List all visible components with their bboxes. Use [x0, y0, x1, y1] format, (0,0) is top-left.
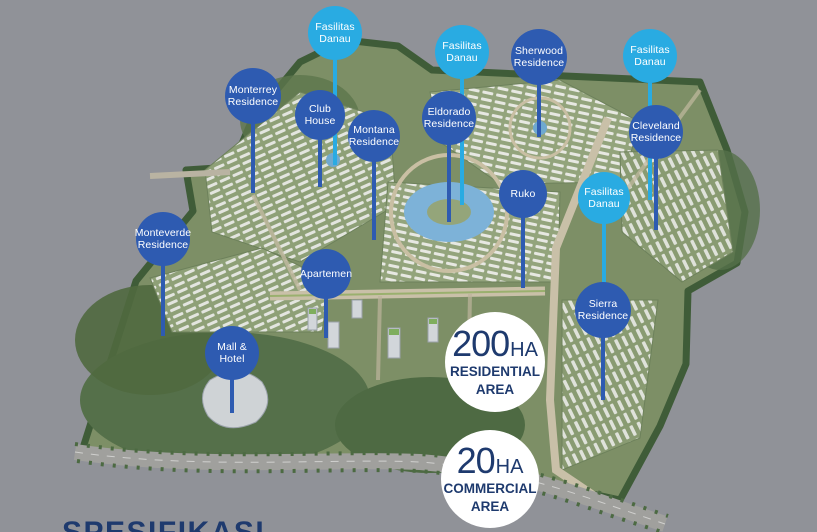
- pin-label-line: Residence: [631, 132, 682, 144]
- pin-label-line: Residence: [228, 96, 279, 108]
- stat-circle-commercial-area: 20HACOMMERCIALAREA: [441, 430, 539, 528]
- pin-label-line: Danau: [319, 33, 350, 45]
- pin-label-line: Residence: [138, 239, 189, 251]
- map-pin-monterrey-residence: MonterreyResidence: [225, 68, 281, 124]
- pin-label-line: Mall &: [217, 341, 247, 353]
- map-pin-mall-hotel: Mall &Hotel: [205, 326, 259, 380]
- map-pin-apartemen: Apartemen: [301, 249, 351, 299]
- pin-label-line: Danau: [446, 52, 477, 64]
- pin-label-line: Monterrey: [229, 84, 277, 96]
- stat-value-row: 20HA: [457, 443, 524, 479]
- map-pin-club-house: ClubHouse: [295, 90, 345, 140]
- pin-label-line: Sierra: [589, 298, 618, 310]
- stat-circle-residential-area: 200HARESIDENTIALAREA: [445, 312, 545, 412]
- pin-label-line: Residence: [424, 118, 475, 130]
- pin-label-line: Fasilitas: [442, 40, 481, 52]
- pin-label-line: Fasilitas: [630, 44, 669, 56]
- map-pin-sierra-residence: SierraResidence: [575, 282, 631, 338]
- map-pin-eldorado-residence: EldoradoResidence: [422, 91, 476, 145]
- pin-label-line: Residence: [349, 136, 400, 148]
- stat-label-line: AREA: [476, 382, 514, 398]
- pin-label-line: Residence: [578, 310, 629, 322]
- map-pin-fasilitas-danau-1: FasilitasDanau: [308, 6, 362, 60]
- map-pin-monteverde-residence: MonteverdeResidence: [136, 212, 190, 266]
- pin-label-line: Cleveland: [632, 120, 680, 132]
- map-pin-montana-residence: MontanaResidence: [348, 110, 400, 162]
- bottom-heading: SPESIFIKASI: [62, 516, 265, 532]
- pin-label-line: House: [305, 115, 336, 127]
- masterplan-aerial-map: [0, 0, 817, 532]
- pin-label-line: Eldorado: [428, 106, 471, 118]
- map-pin-fasilitas-danau-4: FasilitasDanau: [578, 172, 630, 224]
- stat-value: 200: [452, 326, 509, 362]
- stat-label-line: RESIDENTIAL: [450, 364, 540, 380]
- pin-label-line: Ruko: [511, 188, 536, 200]
- stat-label-line: COMMERCIAL: [444, 481, 537, 497]
- stat-unit: HA: [510, 340, 538, 360]
- pin-label-line: Apartemen: [300, 268, 352, 280]
- pin-label-line: Danau: [588, 198, 619, 210]
- pin-label-line: Fasilitas: [584, 186, 623, 198]
- pin-label-line: Monteverde: [135, 227, 191, 239]
- pin-label-line: Fasilitas: [315, 21, 354, 33]
- stat-value: 20: [457, 443, 495, 479]
- pin-label-line: Residence: [514, 57, 565, 69]
- pin-label-line: Hotel: [219, 353, 244, 365]
- map-pin-cleveland-residence: ClevelandResidence: [629, 105, 683, 159]
- masterplan-slide: FasilitasDanauMonterreyResidenceClubHous…: [0, 0, 817, 532]
- stat-unit: HA: [496, 457, 524, 477]
- pin-label-line: Club: [309, 103, 331, 115]
- map-pin-sherwood-residence: SherwoodResidence: [511, 29, 567, 85]
- map-pin-fasilitas-danau-3: FasilitasDanau: [623, 29, 677, 83]
- stat-label-line: AREA: [471, 499, 509, 515]
- pin-label-line: Sherwood: [515, 45, 563, 57]
- pin-label-line: Danau: [634, 56, 665, 68]
- pin-label-line: Montana: [353, 124, 395, 136]
- stat-value-row: 200HA: [452, 326, 538, 362]
- map-pin-ruko: Ruko: [499, 170, 547, 218]
- map-pin-fasilitas-danau-2: FasilitasDanau: [435, 25, 489, 79]
